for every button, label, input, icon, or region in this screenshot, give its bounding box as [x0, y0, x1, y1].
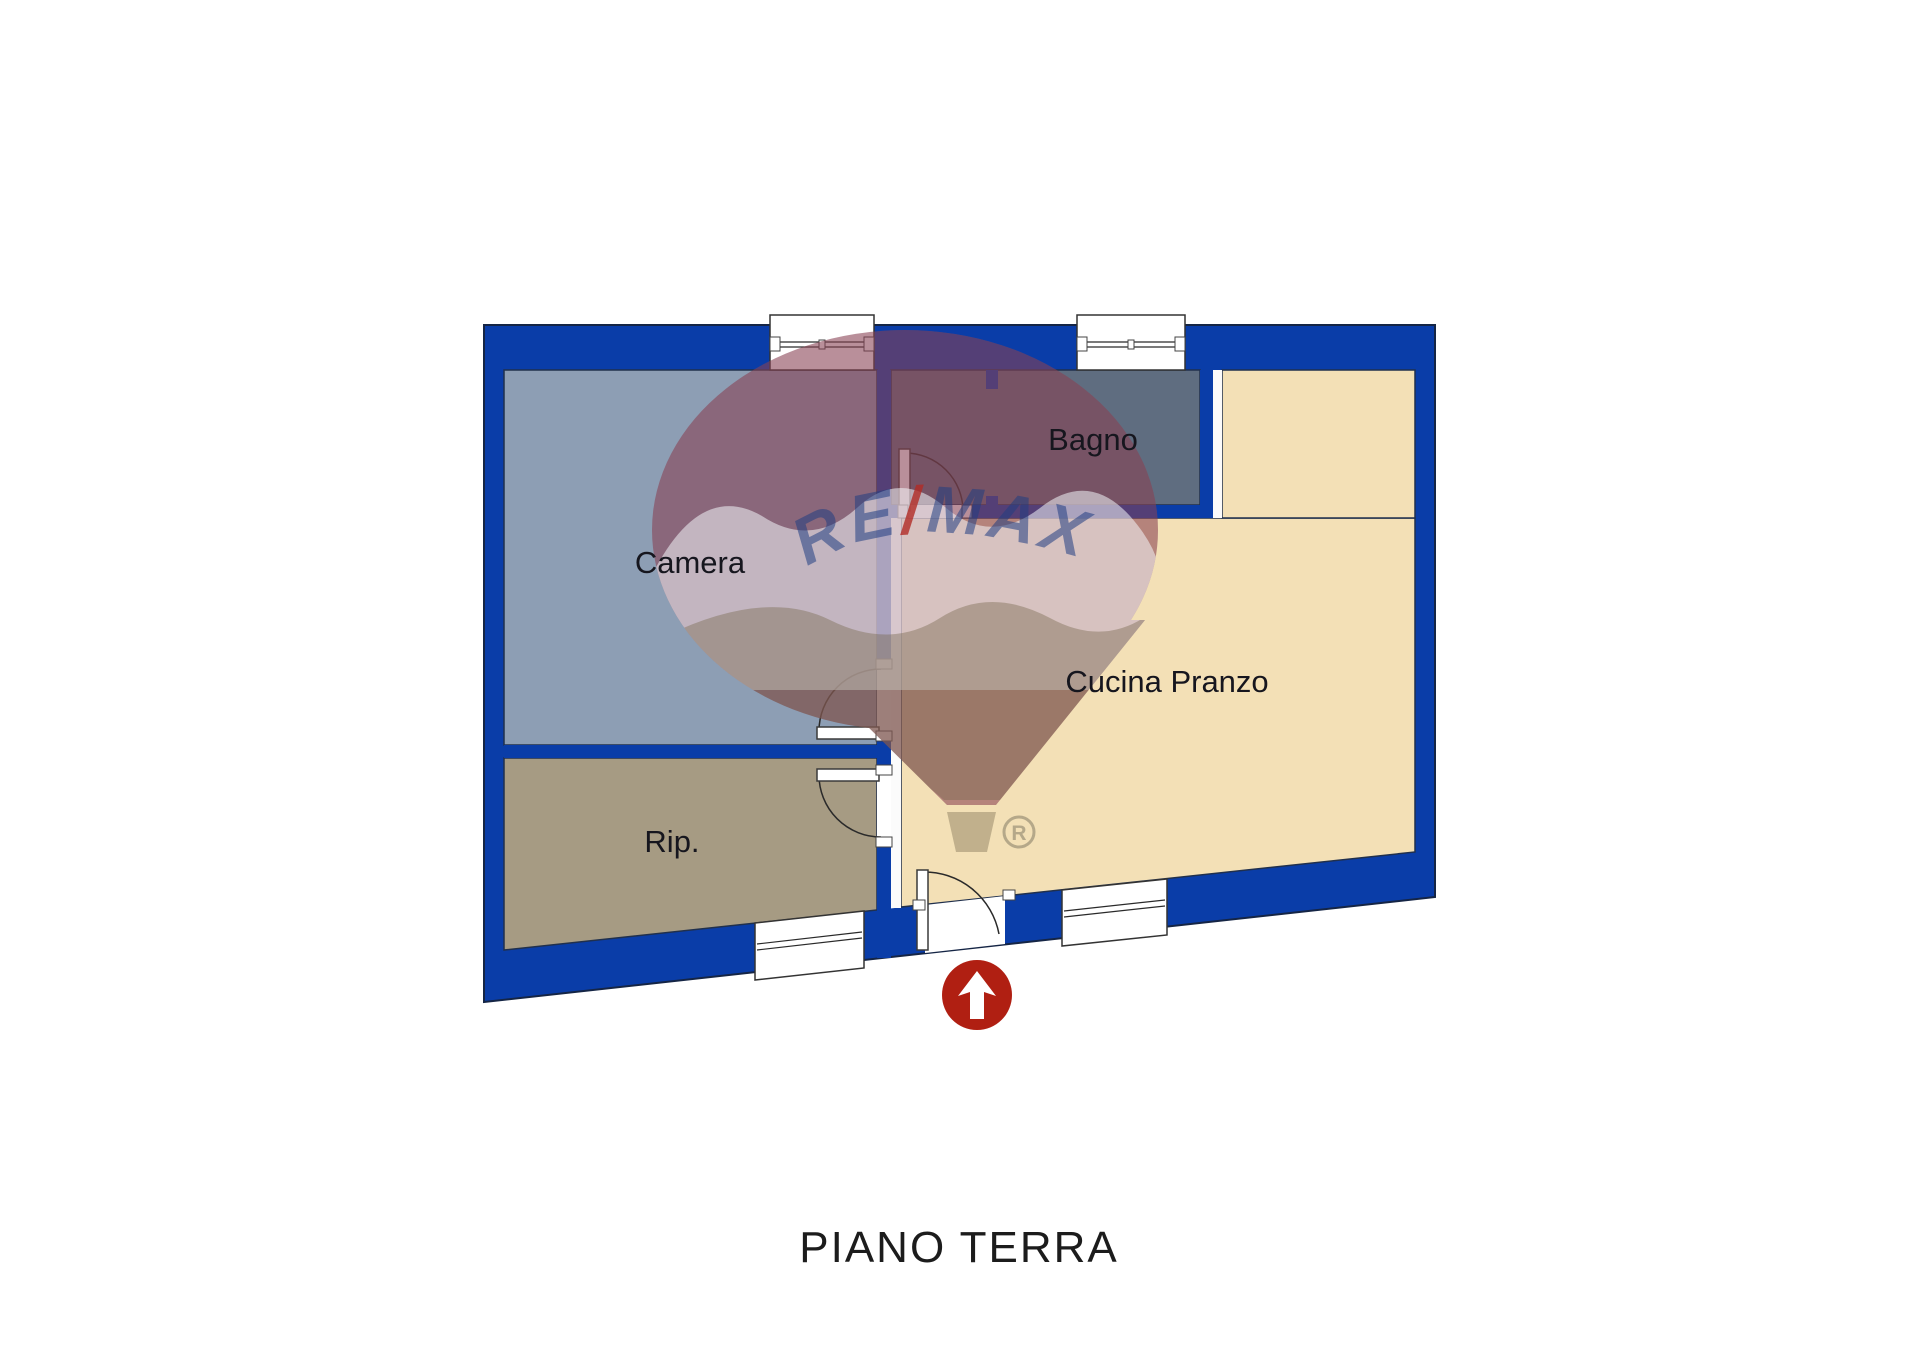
- room-label-cucina: Cucina Pranzo: [1065, 664, 1268, 699]
- window-bottom-left: [755, 911, 864, 980]
- svg-text:R: R: [1011, 822, 1026, 845]
- floorplan-drawing: RE/MAX R Camera Bagno Cucina Pranzo Rip.…: [0, 0, 1920, 1358]
- window-bottom-right: [1062, 879, 1167, 946]
- wall-camera-rip-divider: [504, 745, 877, 758]
- wall-bagno-right: [1200, 370, 1213, 518]
- room-label-rip: Rip.: [644, 824, 699, 859]
- room-label-camera: Camera: [635, 545, 746, 580]
- floorplan-page: RE/MAX R Camera Bagno Cucina Pranzo Rip.…: [0, 0, 1920, 1358]
- floor-title: PIANO TERRA: [799, 1223, 1118, 1272]
- room-cucina-floor-upper: [1222, 370, 1415, 518]
- wall-reveal-strip-bagno: [1213, 370, 1222, 518]
- room-label-bagno: Bagno: [1048, 422, 1138, 457]
- entrance-arrow-badge: [942, 960, 1012, 1030]
- window-top-right: [1077, 315, 1185, 370]
